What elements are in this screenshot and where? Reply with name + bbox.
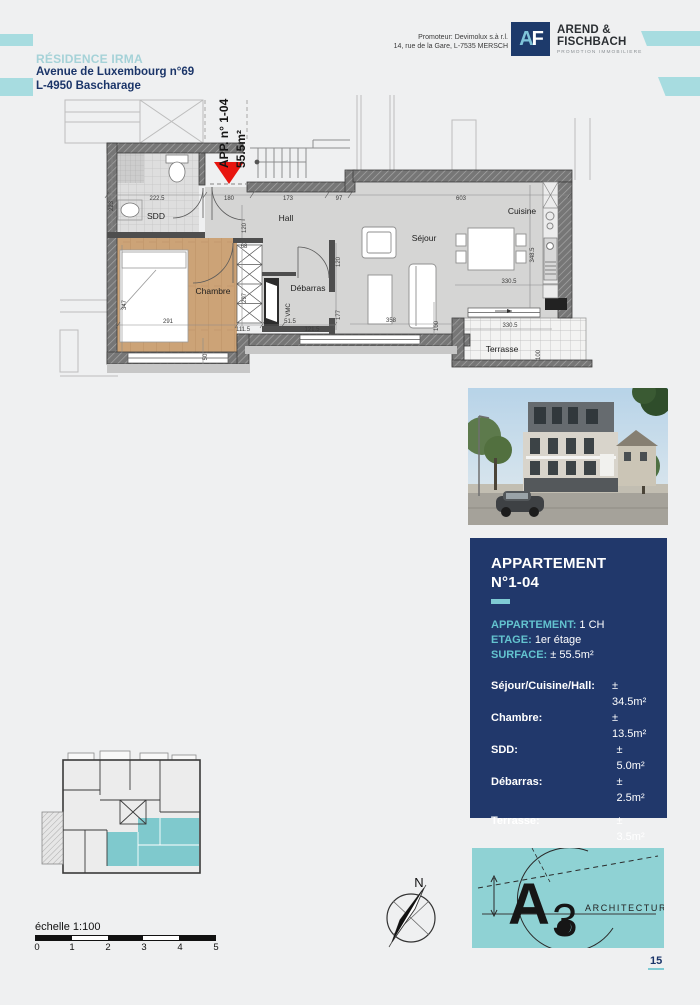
field-surface-value: ± 55.5m² (550, 649, 593, 661)
dim-label: 173 (283, 196, 294, 202)
panel-title-line-2: N°1-04 (491, 573, 653, 592)
area-value: ± 13.5m² (612, 710, 653, 742)
arend-fischbach-logo-icon: AF (511, 22, 550, 56)
area-label: SDD: (491, 742, 617, 774)
promoter-line-2: 14, rue de la Gare, L-7535 MERSCH (394, 42, 508, 51)
area-row-terrace: Terrasse:± 3.5m² (491, 813, 653, 845)
field-apartment-label: APPARTEMENT: (491, 619, 576, 631)
area-label: Débarras: (491, 774, 617, 806)
dim-label: 347 (122, 299, 128, 310)
room-label-sdd: SDD (147, 211, 165, 221)
teal-bar-left-1 (0, 34, 33, 46)
teal-bar-right-1 (641, 31, 700, 46)
dim-label: 100 (536, 349, 542, 360)
area-row: SDD:± 5.0m² (491, 742, 653, 774)
room-label-debarras: Débarras (291, 283, 326, 293)
dim-label: 297 (242, 292, 248, 303)
area-label: Terrasse: (491, 813, 617, 845)
dimension-mark (491, 876, 497, 916)
promoter-name-2: FISCHBACH (557, 36, 627, 48)
bed (120, 250, 188, 342)
field-etage: ETAGE: 1er étage (491, 633, 653, 648)
field-surface-label: SURFACE: (491, 649, 547, 661)
dim-label: 120 (336, 256, 342, 267)
dim-label: 100 (434, 320, 440, 331)
wardrobe (237, 245, 262, 323)
scale-bar-block: échelle 1:100 0 1 2 3 4 5 (35, 921, 225, 954)
scale-tick: 3 (141, 942, 146, 953)
panel-accent-bar (491, 599, 510, 604)
apartment-info-panel: APPARTEMENT N°1-04 APPARTEMENT: 1 CH ETA… (470, 538, 667, 818)
panel-title-line-1: APPARTEMENT (491, 554, 653, 573)
area-value: ± 5.0m² (617, 742, 654, 774)
promoter-name: AREND & FISCHBACH (557, 24, 627, 48)
scale-segment (143, 936, 179, 940)
dim-label: 222.5 (149, 196, 165, 202)
apartment-tag-area: 55.5m² (234, 130, 248, 168)
dim-label: 358 (386, 318, 397, 324)
floor-plan: APP. n° 1-04 55.5m² 223 222.5 180 173 (0, 90, 700, 390)
dim-label: 348.5 (530, 247, 536, 263)
key-plan (35, 748, 210, 880)
area-row: Séjour/Cuisine/Hall:± 34.5m² (491, 678, 653, 710)
room-label-sejour: Séjour (412, 233, 437, 243)
dim-label: 51.5 (284, 319, 296, 325)
field-etage-value: 1er étage (535, 634, 581, 646)
room-label-hall: Hall (279, 213, 294, 223)
scale-segment (108, 936, 144, 940)
dim-label: 180 (224, 196, 235, 202)
dim-label: 291 (163, 319, 174, 325)
scale-numbers: 0 1 2 3 4 5 (35, 942, 217, 954)
dim-label: 50 (203, 353, 209, 360)
scale-tick: 4 (177, 942, 182, 953)
room-label-vmc: VMC (286, 303, 292, 317)
scale-segment (72, 936, 108, 940)
compass-rose-icon: N (383, 862, 445, 957)
a3-letter-a: A (508, 872, 550, 937)
kitchen-counter (543, 182, 558, 298)
area-label: Séjour/Cuisine/Hall: (491, 678, 612, 710)
scale-segment (36, 936, 72, 940)
field-etage-label: ETAGE: (491, 634, 532, 646)
area-value: ± 2.5m² (617, 774, 654, 806)
promoter-line-1: Promoteur: Devimolux s.à r.l. (394, 33, 508, 42)
area-value: ± 3.5m² (617, 813, 654, 845)
dim-label: 177 (336, 309, 342, 320)
building-photo-render (468, 388, 668, 525)
architect-logo: A 3 ARCHITECTURE (472, 848, 664, 948)
dim-label: 121.5 (304, 327, 320, 333)
dim-label: 330.5 (502, 323, 518, 329)
room-label-cuisine: Cuisine (508, 206, 537, 216)
dim-label: 330.5 (501, 279, 517, 285)
a3-digit-3: 3 (552, 894, 578, 946)
building-photo (468, 388, 668, 525)
promoter-tagline: PROMOTION IMMOBILIERE (557, 50, 642, 55)
field-surface: SURFACE: ± 55.5m² (491, 648, 653, 663)
room-label-terrasse: Terrasse (486, 344, 519, 354)
scale-segment (179, 936, 215, 940)
area-row: Débarras:± 2.5m² (491, 774, 653, 806)
compass-north-label: N (414, 875, 423, 890)
dim-label: 97 (336, 196, 343, 202)
shower (117, 153, 144, 183)
promoter-name-1: AREND & (557, 24, 627, 36)
building-render (523, 402, 618, 492)
scale-bar (35, 935, 216, 941)
vmc-shaft (264, 278, 279, 326)
scale-tick: 2 (105, 942, 110, 953)
architecture-wordmark: ARCHITECTURE (585, 903, 664, 913)
brochure-page: RÉSIDENCE IRMA Avenue de Luxembourg n°69… (0, 0, 700, 1005)
scale-tick: 5 (213, 942, 218, 953)
area-label: Chambre: (491, 710, 612, 742)
field-apartment-value: 1 CH (579, 619, 604, 631)
area-row: Chambre:± 13.5m² (491, 710, 653, 742)
page-number: 15 (648, 955, 664, 970)
staircase (250, 140, 350, 178)
panel-areas: Séjour/Cuisine/Hall:± 34.5m² Chambre:± 1… (491, 678, 653, 845)
residence-title: RÉSIDENCE IRMA (36, 52, 143, 66)
architect-logo-art: A 3 ARCHITECTURE (472, 848, 664, 948)
dim-label: 223 (109, 200, 115, 211)
key-plan-balcony-left (42, 812, 63, 864)
room-label-chambre: Chambre (196, 286, 231, 296)
panel-fields: APPARTEMENT: 1 CH ETAGE: 1er étage SURFA… (491, 618, 653, 663)
address-line-1: Avenue de Luxembourg n°69 (36, 66, 194, 78)
terrasse-floor (464, 318, 586, 362)
dim-label: 68 (241, 244, 248, 250)
area-value: ± 34.5m² (612, 678, 653, 710)
scale-label: échelle 1:100 (35, 921, 225, 933)
apartment-tag-number: APP. n° 1-04 (217, 98, 231, 168)
dim-label: 603 (456, 196, 467, 202)
promoter-block: Promoteur: Devimolux s.à r.l. 14, rue de… (394, 33, 508, 51)
dim-label: 111.5 (236, 327, 251, 333)
scale-tick: 0 (34, 942, 39, 953)
dim-label: 120 (242, 222, 248, 233)
scale-tick: 1 (69, 942, 74, 953)
logo-letter-f: F (532, 28, 542, 51)
logo-letter-a: A (519, 28, 531, 51)
field-apartment: APPARTEMENT: 1 CH (491, 618, 653, 633)
